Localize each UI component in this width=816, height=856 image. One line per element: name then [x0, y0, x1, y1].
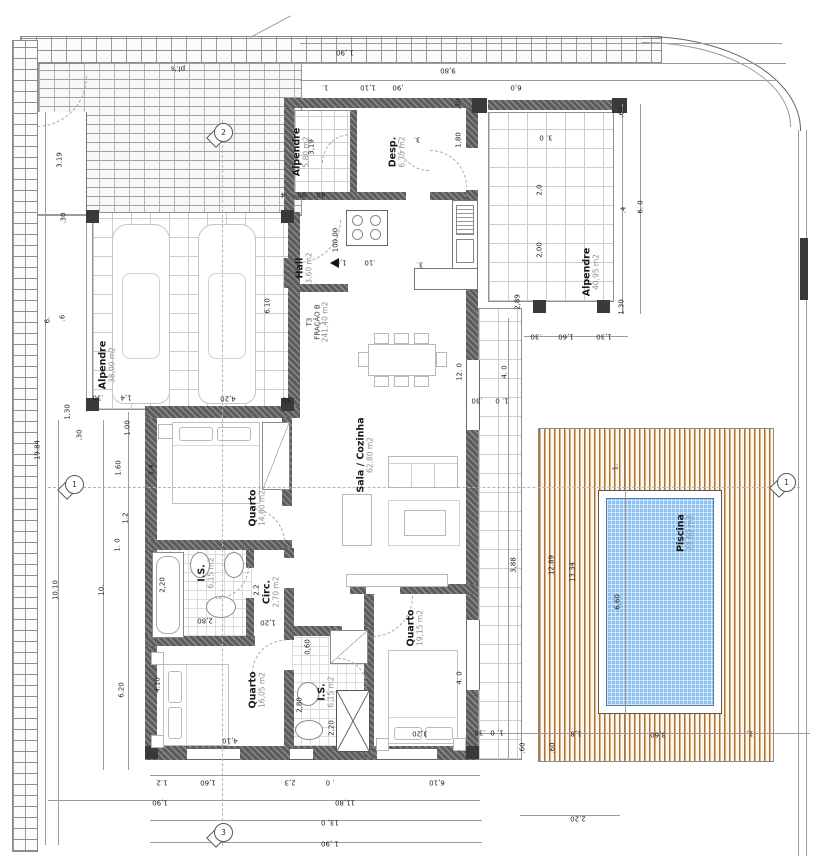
dimension-label: .30: [456, 98, 463, 109]
dimension-label: 1,8: [570, 730, 581, 737]
car: [112, 224, 170, 404]
dimension-line: [300, 80, 778, 81]
chair: [374, 376, 389, 387]
window: [290, 748, 313, 760]
dimension-label: 1 ,90: [321, 840, 339, 847]
dimension-label: 1,30: [596, 333, 612, 340]
dimension-label: .6: [60, 315, 67, 322]
wall-segment: [466, 108, 478, 148]
chair: [414, 333, 429, 344]
dimension-label: 13, 0: [321, 819, 339, 826]
room-label-terrace: Alpendre 40,95 m2: [582, 248, 601, 297]
wall-segment: [356, 192, 406, 200]
chair: [358, 352, 369, 367]
dimension-label: .60: [550, 742, 557, 753]
car-roof: [208, 273, 246, 359]
post: [466, 746, 479, 759]
dimension-label: .30: [92, 394, 103, 401]
dimension-label: 1. 0: [495, 397, 508, 404]
section-marker-number: 2: [214, 123, 233, 142]
dimension-label: 6.10: [265, 298, 272, 314]
section-marker-right: 1: [770, 472, 800, 502]
stove: [346, 210, 388, 246]
dimension-line: [625, 428, 626, 760]
dimension-label: 1,20: [260, 619, 276, 626]
dimension-label: 6,60: [615, 594, 622, 610]
dimension-label: 10.10: [53, 580, 60, 600]
dimension-label: 1,30: [65, 404, 72, 420]
dimension-line: [150, 775, 480, 776]
fraction-label: T3 FRAÇÃO B 241,40 m2: [306, 302, 331, 343]
wall-segment: [284, 670, 294, 746]
dimension-label: .60: [619, 106, 626, 117]
dimension-label: 1. 0: [490, 729, 503, 736]
pillow: [179, 427, 213, 441]
dimension-label: 4. 0: [502, 365, 509, 378]
section-line-horizontal: [48, 487, 800, 488]
dimension-label: 2,00: [537, 242, 544, 258]
dimension-label: .30: [474, 729, 485, 736]
pillow: [168, 671, 182, 703]
chair: [374, 333, 389, 344]
sofa: [388, 456, 458, 488]
dimension-label: 1.60: [116, 460, 123, 476]
dimension-label: 11,80: [335, 799, 355, 806]
dimension-label: 1,60: [200, 779, 216, 786]
dimension-label: .4: [281, 191, 288, 198]
dimension-label: 1 ,90: [336, 49, 354, 56]
dimension-label: 13.34: [570, 562, 577, 582]
dimension-label: 1,80: [456, 132, 463, 148]
dimension-label: 100.00: [333, 228, 340, 253]
boundary-curve-inner: [642, 42, 791, 127]
dimension-label: 4,10: [222, 737, 238, 744]
bathtub: [152, 552, 184, 638]
dimension-label: 3,88: [511, 557, 518, 573]
dimension-label: 12.89: [549, 555, 556, 575]
dimension-label: 3.: [414, 136, 421, 143]
dimension-label: .10: [364, 259, 375, 266]
dimension-line: [150, 820, 482, 821]
kitchen-island: [414, 268, 478, 290]
room-label-hall: Hall 3,60 m2: [295, 252, 314, 283]
appliance: [456, 239, 474, 263]
wall-segment: [294, 284, 348, 292]
dimension-label: 4. 0: [457, 671, 464, 684]
nightstand: [158, 424, 173, 439]
dimension-label: 4,20: [220, 395, 236, 402]
dimension-label: 19.84: [35, 440, 42, 460]
toilet: [206, 596, 236, 618]
dimension-label: .30: [61, 212, 68, 223]
nightstand: [376, 738, 389, 751]
dimension-label: 1.00: [125, 420, 132, 436]
room-label-piscina: Piscina 23,60 m2: [676, 514, 695, 552]
dimension-label: 0,60: [305, 639, 312, 655]
dimension-line: [45, 112, 46, 845]
dimension-label: .30: [530, 333, 541, 340]
nightstand: [151, 735, 164, 748]
room-label-is2: I.S. 6,15 m2: [317, 676, 336, 707]
dimension-label: 3. 0: [539, 134, 552, 141]
dimension-label: 1,: [747, 730, 754, 737]
wall-segment: [284, 548, 294, 558]
dimension-label: 2,20: [329, 720, 336, 736]
car-roof: [122, 273, 160, 359]
dining-table: [368, 344, 436, 376]
dimension-label: 1. 0: [115, 538, 122, 551]
room-label-circ: Circ. 2,70 m2: [262, 576, 281, 607]
post: [597, 300, 610, 313]
section-marker-number: 1: [777, 473, 796, 492]
dimension-label: 2,80: [197, 617, 213, 624]
section-marker-left: 1: [58, 474, 88, 504]
dimension-line: [300, 43, 782, 44]
dimension-label: 1.2: [123, 512, 130, 523]
dimension-label: 12. 0: [457, 363, 464, 381]
dimension-label: 6.: [45, 317, 52, 324]
ramp-line: [250, 15, 291, 37]
dimension-label: 2,89: [515, 294, 522, 310]
dimension-line: [128, 412, 129, 770]
dimension-label: 1.: [613, 464, 620, 471]
boundary-gate-post: [800, 238, 808, 300]
coffee-table: [404, 510, 446, 536]
dimension-label: 1.: [322, 84, 329, 91]
dimension-label: 2,0: [537, 184, 544, 195]
dimension-label: 3.4: [149, 464, 156, 475]
dimension-label: 4.10: [155, 677, 162, 693]
post: [86, 210, 99, 223]
dimension-label: .30: [77, 429, 84, 440]
dimension-label: .30: [282, 396, 293, 403]
dimension-label: .60: [520, 742, 527, 753]
dimension-label: 6.20: [119, 682, 126, 698]
dimension-label: 1,60: [558, 333, 574, 340]
room-label-quarto2: Quarto 16,05 m2: [248, 671, 267, 708]
door-arc: [252, 640, 285, 673]
nightstand: [151, 652, 164, 665]
dimension-label: .4: [621, 207, 628, 214]
car: [198, 224, 256, 404]
window: [466, 360, 480, 430]
shower: [336, 690, 370, 752]
room-label-quarto3: Quarto 19,15 m2: [406, 609, 425, 646]
dimension-line: [150, 842, 482, 843]
pool-water: [606, 498, 714, 706]
wall-segment: [466, 690, 478, 746]
dimension-label: 1.2: [156, 779, 167, 786]
dimension-label: 6. 0: [638, 200, 645, 213]
dimension-label: .30: [471, 397, 482, 404]
dimension-label: pl.'s: [171, 65, 185, 72]
door-arc: [430, 150, 467, 187]
section-marker-bottom: 3: [207, 822, 237, 852]
dimension-label: 2,20: [570, 815, 586, 822]
wall-segment: [284, 98, 474, 108]
wall-segment: [246, 598, 254, 640]
dimension-label: .40: [316, 191, 327, 198]
dimension-line: [86, 63, 786, 64]
dimension-label: 3.19: [57, 152, 64, 168]
section-marker-number: 3: [214, 823, 233, 842]
chair: [394, 333, 409, 344]
dimension-label: 6,0: [510, 84, 521, 91]
dimension-label: ,90: [392, 84, 403, 91]
dimension-label: 1,6: [335, 259, 346, 266]
dimension-label: 6,10: [429, 779, 445, 786]
chair: [436, 352, 447, 367]
dimension-label: 1.30: [619, 299, 626, 315]
dimension-label: . 0: [326, 779, 335, 786]
toilet: [295, 720, 323, 740]
bed: [163, 664, 229, 746]
dimension-line: [48, 800, 480, 801]
room-label-alpendre-garage: Alpendre 38,00 m2: [98, 341, 117, 390]
pillow: [168, 707, 182, 739]
pillow: [425, 727, 453, 740]
dimension-label: 2,80: [297, 697, 304, 713]
post: [533, 300, 546, 313]
chair: [414, 376, 429, 387]
chair: [394, 376, 409, 387]
tv-bench: [346, 574, 448, 587]
dimension-label: 1,4: [120, 394, 131, 401]
path-edge-line: [86, 214, 87, 412]
room-label-desp: Desp. 6,75 m2: [388, 136, 407, 167]
dimension-label: 2,3: [284, 779, 295, 786]
wardrobe: [330, 630, 368, 664]
dimension-label: 3,60: [650, 731, 666, 738]
window: [187, 748, 240, 760]
nightstand: [453, 738, 466, 751]
dimension-label: 2.2: [254, 584, 261, 595]
door-opening: [466, 148, 478, 190]
dimension-label: 10.: [99, 584, 106, 595]
section-marker-top: 2: [207, 122, 237, 152]
appliance: [456, 205, 474, 235]
wardrobe: [262, 422, 290, 490]
room-label-is1: I.S. 6,15 m2: [197, 557, 216, 588]
dimension-label: 1,90: [152, 799, 168, 806]
dimension-label: 9,80: [440, 67, 456, 74]
floor-plan-canvas: Alpendre 38,00 m2 Alpendre 5,80 m2 Desp.…: [0, 0, 816, 856]
room-label-quarto1: Quarto 14,60 m2: [248, 489, 267, 526]
section-marker-number: 1: [65, 475, 84, 494]
dimension-line: [478, 733, 810, 734]
dimension-label: 3,20: [412, 730, 428, 737]
dimension-label: .90: [297, 191, 308, 198]
dimension-label: 3,19: [309, 139, 316, 155]
dimension-label: 2,20: [160, 577, 167, 593]
room-label-sala-cozinha: Sala / Cozinha 62,80 m2: [356, 417, 375, 492]
post: [472, 98, 487, 113]
armchair: [342, 494, 372, 546]
wall-segment: [488, 100, 616, 110]
window: [466, 620, 480, 690]
dimension-line: [508, 318, 509, 758]
wall-segment: [350, 110, 357, 194]
post: [281, 210, 294, 223]
dimension-label: 3.: [417, 261, 424, 268]
dimension-label: 1,10: [360, 84, 376, 91]
